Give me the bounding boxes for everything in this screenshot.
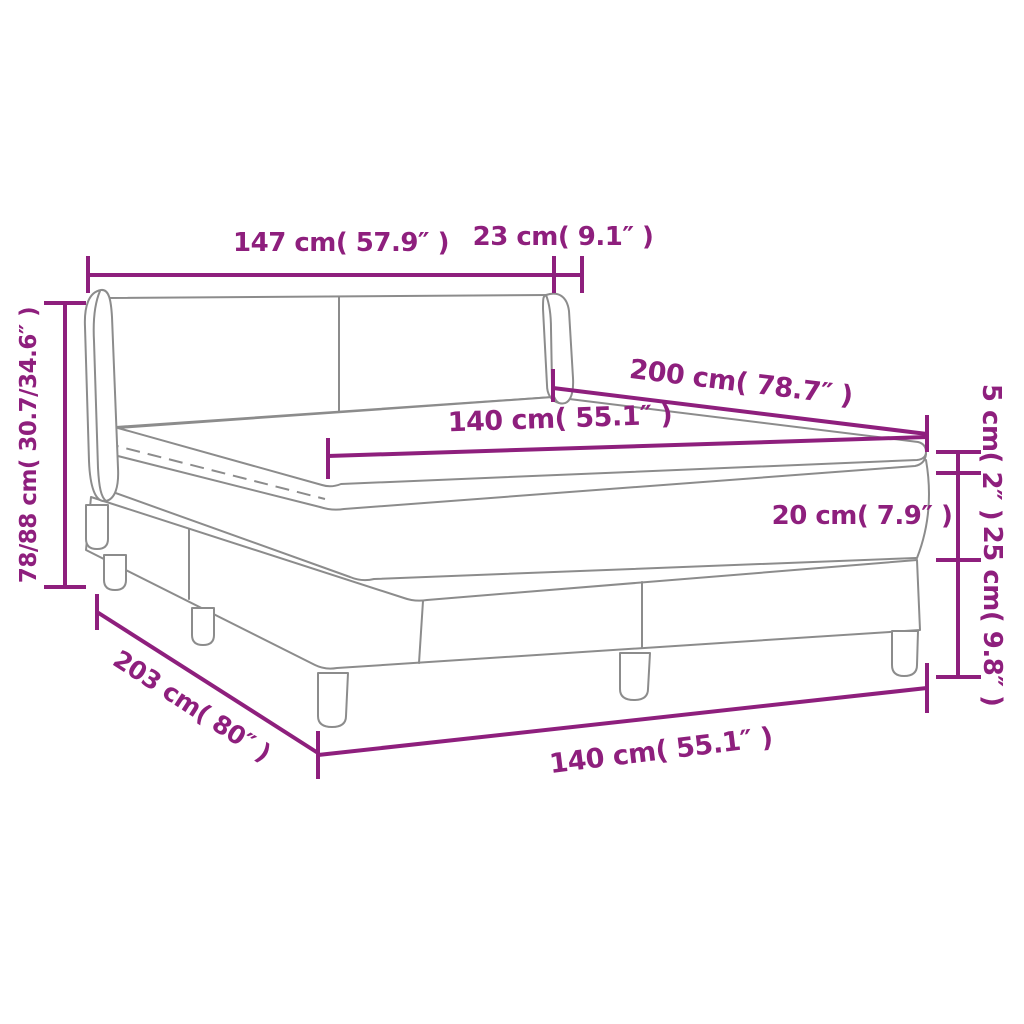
mattress-thickness-label: 20 cm( 7.9″ ) [772, 501, 953, 531]
base-leg-height-label: 25 cm( 9.8″ ) [977, 526, 1007, 707]
headboard-wing-depth-label: 23 cm( 9.1″ ) [473, 222, 654, 252]
leg [86, 505, 108, 549]
leg [620, 653, 650, 700]
leg [892, 631, 918, 676]
overall-height-label: 78/88 cm( 30.7/34.6″ ) [16, 307, 42, 583]
leg [104, 555, 126, 590]
leg [192, 608, 214, 645]
headboard-top-edge [104, 295, 549, 298]
topper-thickness-label: 5 cm( 2″ ) [976, 384, 1006, 520]
bed-dimension-diagram: 147 cm( 57.9″ )23 cm( 9.1″ )78/88 cm( 30… [0, 0, 1024, 1024]
headboard-width-label: 147 cm( 57.9″ ) [233, 228, 449, 258]
headboard-left-wing [85, 290, 118, 501]
leg [318, 673, 348, 727]
